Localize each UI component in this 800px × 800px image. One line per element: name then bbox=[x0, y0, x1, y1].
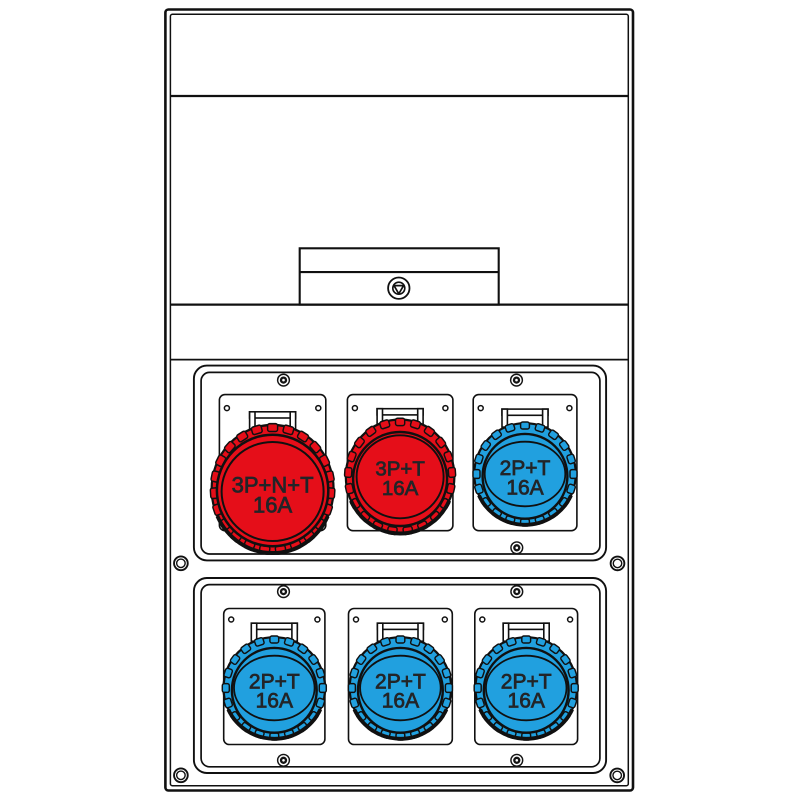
svg-text:16A: 16A bbox=[382, 690, 419, 713]
svg-text:16A: 16A bbox=[508, 690, 545, 713]
svg-text:16A: 16A bbox=[253, 493, 292, 518]
svg-text:16A: 16A bbox=[256, 690, 293, 713]
svg-text:16A: 16A bbox=[506, 477, 543, 500]
svg-text:16A: 16A bbox=[382, 477, 419, 500]
